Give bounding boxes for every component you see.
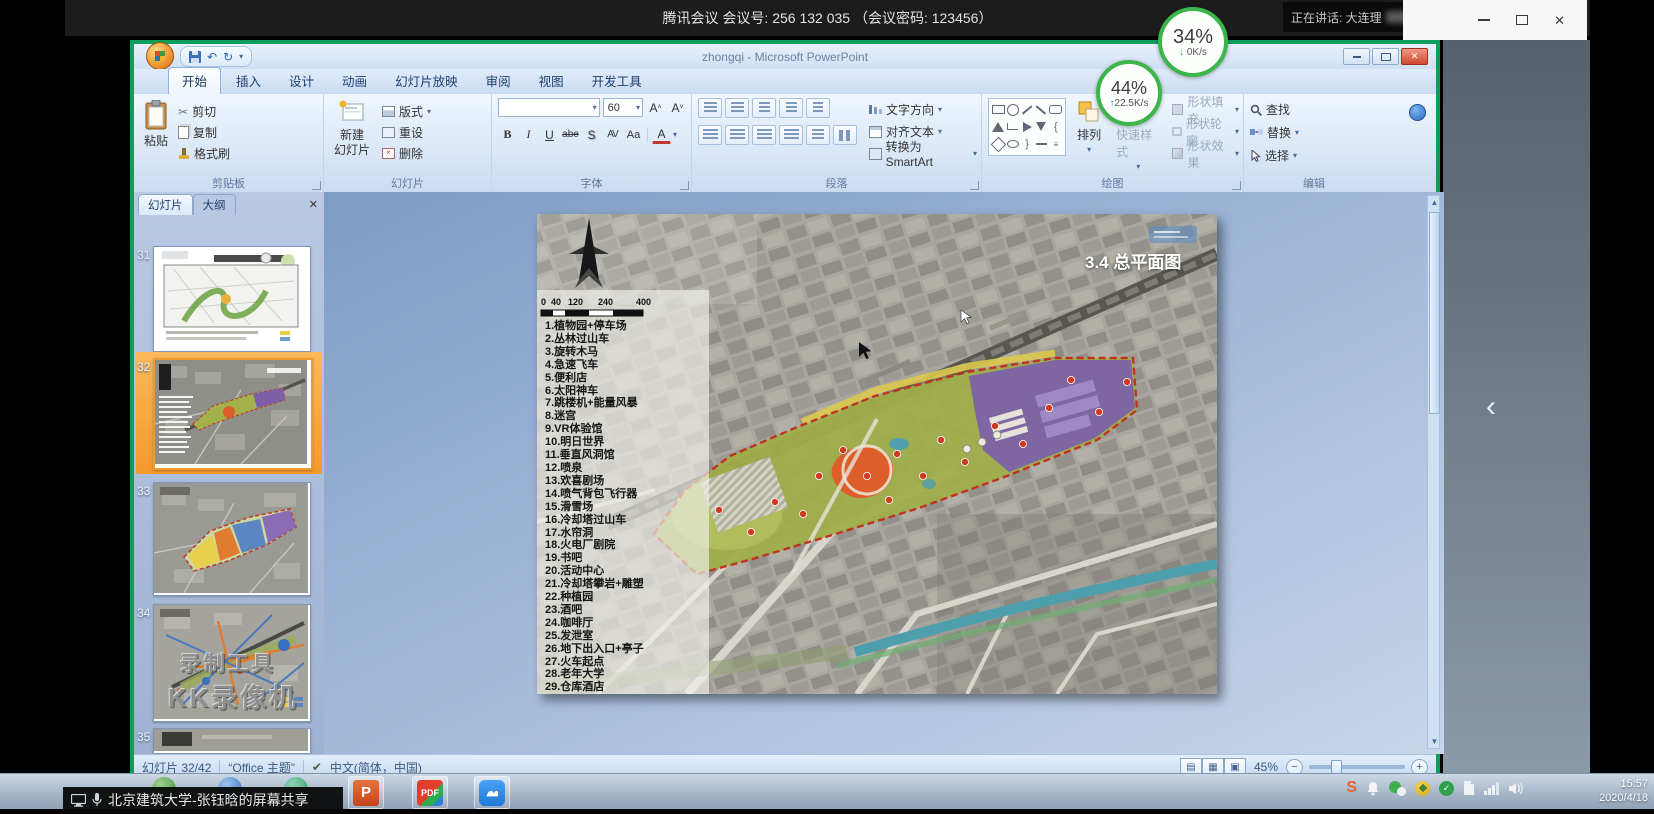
legend-item: 7.跳楼机+能量风暴 — [545, 397, 644, 410]
legend-item: 26.地下出入口+亭子 — [545, 643, 644, 656]
paste-button[interactable]: 粘贴 — [140, 98, 172, 163]
slide-number: 34 — [137, 606, 150, 620]
legend-item: 5.便利店 — [545, 372, 644, 385]
dialog-launcher-icon[interactable] — [312, 181, 321, 190]
replace-button[interactable]: 替换 ▾ — [1250, 123, 1380, 142]
recorder-window-controls: ✕ — [1403, 0, 1587, 40]
slide-thumbnail-32[interactable] — [153, 358, 313, 470]
network-percent: 44% — [1111, 78, 1147, 98]
legend-item: 10.明日世界 — [545, 436, 644, 449]
zoom-slider[interactable] — [1309, 765, 1405, 769]
change-case-button[interactable]: Aa — [624, 125, 643, 144]
select-button[interactable]: 选择 ▾ — [1250, 146, 1380, 165]
legend-item: 23.酒吧 — [545, 604, 644, 617]
ppt-window-controls: ✕ — [1343, 48, 1428, 65]
new-slide-icon — [339, 100, 365, 124]
slide-number: 35 — [137, 730, 150, 744]
windows-taskbar: 北京建筑大学-张钰晗的屏幕共享 P PDF S ✓ 15:57 2020/ — [0, 773, 1654, 810]
legend-item: 11.垂直风洞馆 — [545, 449, 644, 462]
increase-indent-button[interactable] — [779, 98, 803, 118]
ppt-restore-button[interactable] — [1372, 48, 1399, 65]
tray-volume-icon[interactable] — [1509, 782, 1524, 795]
ribbon-tab-row: 开始 插入 设计 动画 幻灯片放映 审阅 视图 开发工具 — [134, 69, 1436, 94]
tray-sogou-icon[interactable]: S — [1346, 780, 1357, 796]
meeting-title: 腾讯会议 会议号: 256 132 035 （会议密码: 123456） — [663, 8, 993, 28]
zoom-level: 45% — [1254, 760, 1278, 774]
tray-coin-icon[interactable] — [1415, 781, 1430, 796]
office-button[interactable] — [146, 42, 174, 70]
slide-thumbnail-31[interactable] — [153, 246, 311, 352]
legend-item: 12.喷泉 — [545, 462, 644, 475]
group-label: 剪贴板 — [134, 175, 323, 191]
italic-button[interactable]: I — [519, 125, 538, 144]
thumbnail-33-image — [154, 483, 308, 593]
legend-item: 29.仓库酒店 — [545, 681, 644, 694]
legend-item: 16.冷却塔过山车 — [545, 514, 644, 527]
align-right-button[interactable] — [752, 125, 776, 145]
redo-icon[interactable]: ↻ — [223, 51, 233, 63]
new-slide-button[interactable]: 新建 幻灯片 — [330, 98, 374, 163]
share-label-text: 北京建筑大学-张钰晗的屏幕共享 — [108, 790, 309, 810]
replace-icon — [1250, 127, 1263, 138]
slide-logo-badge — [1149, 226, 1197, 243]
legend-item: 19.书吧 — [545, 552, 644, 565]
meeting-app-icon — [479, 780, 505, 806]
office-logo-icon — [155, 51, 165, 61]
thumbnail-31-image — [154, 247, 308, 349]
shape-outline-icon — [1172, 127, 1183, 136]
justify-button[interactable] — [779, 125, 803, 145]
tray-bell-icon[interactable] — [1366, 781, 1380, 796]
bold-button[interactable]: B — [498, 125, 517, 144]
minimize-icon[interactable] — [1478, 19, 1490, 21]
speaking-indicator: 正在讲话: 大连理 — [1283, 2, 1413, 32]
legend-item: 6.太阳神车 — [545, 385, 644, 398]
legend-item: 15.滑雪场 — [545, 501, 644, 514]
pdf-icon: PDF — [417, 780, 443, 806]
slide-canvas[interactable]: 0 40 120 240 400 3.4 总平面图 1.植物园+停车场 2.丛林… — [537, 214, 1217, 694]
ppt-close-button[interactable]: ✕ — [1401, 48, 1428, 65]
powerpoint-window: ↶ ↻ ▾ zhongqi - Microsoft PowerPoint ✕ 开… — [130, 40, 1440, 775]
cut-icon: ✂ — [178, 105, 188, 119]
format-painter-button[interactable]: 格式刷 — [178, 144, 230, 163]
font-size-combo[interactable]: 60▾ — [603, 98, 643, 117]
align-text-icon — [869, 126, 882, 138]
slide-number: 32 — [137, 360, 150, 374]
shapes-gallery[interactable]: { } ≡ — [988, 98, 1066, 156]
group-label: 字体 — [492, 175, 691, 191]
legend-item: 27.火车起点 — [545, 656, 644, 669]
network-badge-inner: 44% ↑22.5K/s — [1096, 60, 1162, 126]
panel-close-icon[interactable]: ✕ — [309, 198, 318, 211]
dialog-launcher-icon[interactable] — [1232, 181, 1241, 190]
window-title: zhongqi - Microsoft PowerPoint — [134, 50, 1436, 64]
select-icon — [1250, 150, 1261, 162]
network-speed: 0K/s — [1187, 47, 1207, 58]
maximize-icon[interactable] — [1516, 15, 1528, 25]
legend-item: 3.旋转木马 — [545, 346, 644, 359]
align-center-button[interactable] — [725, 125, 749, 145]
legend-item: 17.水帘洞 — [545, 527, 644, 540]
font-color-dropdown-icon[interactable]: ▾ — [673, 130, 677, 139]
layout-button[interactable]: 版式 ▾ — [382, 102, 431, 121]
columns-button[interactable] — [833, 125, 857, 145]
recorder-watermark-line1: 录制工具 — [180, 648, 276, 678]
taskbar-powerpoint-button[interactable]: P — [348, 776, 384, 809]
cut-button[interactable]: ✂剪切 — [178, 102, 230, 121]
slide-thumbnail-33[interactable] — [153, 482, 311, 596]
legend-item: 13.欢喜剧场 — [545, 475, 644, 488]
slide-editing-area: 0 40 120 240 400 3.4 总平面图 1.植物园+停车场 2.丛林… — [324, 192, 1444, 754]
shape-fill-icon — [1172, 104, 1184, 115]
legend-item: 14.喷气背包飞行器 — [545, 488, 644, 501]
shape-effects-button[interactable]: 形状效果 ▾ — [1172, 144, 1240, 163]
group-label: 段落 — [692, 175, 981, 191]
network-speed: 22.5K/s — [1115, 98, 1149, 109]
strikethrough-button[interactable]: abe — [561, 125, 580, 144]
screen: 腾讯会议 会议号: 256 132 035 （会议密码: 123456） 正在讲… — [0, 0, 1654, 814]
clock-date: 2020/4/18 — [1599, 791, 1648, 805]
numbering-button[interactable] — [725, 98, 749, 118]
tab-review[interactable]: 审阅 — [473, 68, 524, 94]
tab-slideshow[interactable]: 幻灯片放映 — [382, 68, 471, 94]
scrollbar-thumb[interactable] — [1429, 212, 1440, 414]
slide-title: 3.4 总平面图 — [1085, 248, 1181, 273]
slides-panel: 幻灯片 大纲 ✕ 31 — [134, 192, 324, 754]
clock-time: 15:57 — [1599, 777, 1648, 791]
format-painter-icon — [178, 148, 190, 160]
tray-network-icon[interactable] — [1484, 782, 1500, 795]
dialog-launcher-icon[interactable] — [970, 181, 979, 190]
decrease-indent-button[interactable] — [752, 98, 776, 118]
bullets-button[interactable] — [698, 98, 722, 118]
thumbnail-32-image — [155, 360, 307, 464]
copy-button[interactable]: 复制 — [178, 123, 230, 142]
tab-slides-thumbnails[interactable]: 幻灯片 — [138, 194, 193, 215]
slide-number: 31 — [137, 248, 150, 262]
font-name-combo[interactable]: ▾ — [498, 98, 600, 117]
legend-item: 8.迷宫 — [545, 410, 644, 423]
text-direction-icon — [869, 104, 882, 115]
main-scrollbar[interactable]: ▲ ▼ — [1427, 195, 1440, 749]
taskbar-meeting-button[interactable] — [474, 776, 510, 809]
tab-home[interactable]: 开始 — [168, 67, 221, 94]
group-label: 编辑 — [1244, 175, 1384, 191]
group-clipboard: 粘贴 ✂剪切 复制 格式刷 剪贴板 — [134, 94, 324, 192]
speaking-label: 正在讲话: 大连理 — [1291, 9, 1382, 26]
underline-button[interactable]: U — [540, 125, 559, 144]
tab-outline[interactable]: 大纲 — [193, 194, 236, 215]
dialog-launcher-icon[interactable] — [680, 181, 689, 190]
tray-check-icon[interactable]: ✓ — [1439, 781, 1454, 796]
panel-tabs: 幻灯片 大纲 ✕ — [134, 194, 324, 215]
tab-insert[interactable]: 插入 — [223, 68, 274, 94]
paste-icon — [144, 100, 168, 130]
undo-icon[interactable]: ↶ — [207, 51, 217, 63]
shrink-font-button[interactable]: A˅ — [668, 98, 687, 117]
text-direction-button[interactable]: 文字方向 ▾ — [869, 100, 977, 119]
legend-item: 22.种植园 — [545, 591, 644, 604]
line-spacing-button[interactable] — [806, 98, 830, 118]
group-label: 绘图 — [982, 175, 1243, 191]
delete-slide-button[interactable]: ×删除 — [382, 144, 431, 163]
spellcheck-icon[interactable]: ✔ — [312, 760, 322, 774]
network-badge-top: 34% ↓ 0K/s — [1158, 7, 1228, 77]
tab-developer[interactable]: 开发工具 — [579, 68, 655, 94]
legend-item: 28.老年大学 — [545, 668, 644, 681]
convert-smartart-button[interactable]: 转换为 SmartArt ▾ — [869, 144, 977, 163]
help-icon[interactable] — [1409, 104, 1426, 121]
ppt-titlebar: ↶ ↻ ▾ zhongqi - Microsoft PowerPoint ✕ — [134, 44, 1436, 69]
screen-share-label: 北京建筑大学-张钰晗的屏幕共享 — [63, 787, 343, 813]
save-icon[interactable] — [189, 51, 201, 63]
reset-icon — [382, 127, 395, 138]
tray-green-dot-icon[interactable] — [1389, 781, 1406, 796]
quick-access-toolbar: ↶ ↻ ▾ — [180, 46, 252, 67]
tray-document-icon[interactable] — [1463, 781, 1475, 796]
microphone-icon — [92, 793, 102, 807]
thumbnail-35-image — [154, 729, 308, 751]
slide-number: 33 — [137, 484, 150, 498]
slide-thumbnail-35[interactable] — [153, 728, 311, 754]
group-editing: 查找 替换 ▾ 选择 ▾ 编辑 — [1244, 94, 1384, 192]
find-icon — [1250, 104, 1262, 116]
slide-legend: 1.植物园+停车场 2.丛林过山车 3.旋转木马 4.急速飞车 5.便利店 6.… — [545, 320, 644, 694]
legend-item: 21.冷却塔攀岩+雕塑 — [545, 578, 644, 591]
group-slides: 新建 幻灯片 版式 ▾ 重设 ×删除 幻灯片 — [324, 94, 492, 192]
group-font: ▾ 60▾ A˄ A˅ B I U abe S AV Aa A ▾ — [492, 94, 692, 192]
scale-bar — [541, 310, 643, 316]
font-color-button[interactable]: A — [652, 126, 671, 144]
character-spacing-button[interactable]: AV — [603, 125, 622, 144]
distribute-button[interactable] — [806, 125, 830, 145]
legend-item: 24.咖啡厅 — [545, 617, 644, 630]
reset-button[interactable]: 重设 — [382, 123, 431, 142]
close-icon[interactable]: ✕ — [1554, 14, 1565, 27]
legend-item: 18.火电厂剧院 — [545, 539, 644, 552]
recorder-watermark-line2: KK录像机 — [168, 678, 299, 715]
shadow-button[interactable]: S — [582, 125, 601, 144]
tab-design[interactable]: 设计 — [276, 68, 327, 94]
font-size-value: 60 — [608, 102, 620, 114]
shape-effects-icon — [1172, 148, 1184, 159]
legend-item: 1.植物园+停车场 — [545, 320, 644, 333]
tab-view[interactable]: 视图 — [526, 68, 577, 94]
system-tray: S ✓ — [1346, 780, 1524, 796]
layout-icon — [382, 106, 395, 117]
group-label: 幻灯片 — [324, 175, 491, 191]
align-left-button[interactable] — [698, 125, 722, 145]
taskbar-clock[interactable]: 15:57 2020/4/18 — [1599, 777, 1648, 805]
previous-video-arrow-icon[interactable]: ‹ — [1486, 392, 1496, 422]
legend-item: 25.发泄室 — [545, 630, 644, 643]
download-arrow-icon: ↓ — [1179, 47, 1184, 58]
legend-item: 4.急速飞车 — [545, 359, 644, 372]
ribbon: 粘贴 ✂剪切 复制 格式刷 剪贴板 新建 幻灯片 — [134, 94, 1436, 193]
grow-font-button[interactable]: A˄ — [646, 98, 665, 117]
group-paragraph: 文字方向 ▾ 对齐文本 ▾ 转换为 SmartArt ▾ 段落 — [692, 94, 982, 192]
legend-item: 9.VR体验馆 — [545, 423, 644, 436]
delete-icon: × — [382, 148, 395, 159]
powerpoint-icon: P — [353, 780, 379, 806]
right-letterbox — [1590, 0, 1654, 773]
legend-item: 20.活动中心 — [545, 565, 644, 578]
network-percent: 34% — [1173, 27, 1213, 47]
tab-animations[interactable]: 动画 — [329, 68, 380, 94]
legend-item: 2.丛林过山车 — [545, 333, 644, 346]
smartart-icon — [869, 148, 882, 160]
copy-icon — [178, 126, 189, 139]
qat-dropdown-icon[interactable]: ▾ — [239, 52, 243, 61]
desktop-unshared-area — [1443, 40, 1590, 773]
find-button[interactable]: 查找 — [1250, 100, 1380, 119]
ppt-minimize-button[interactable] — [1343, 48, 1370, 65]
monitor-icon — [71, 794, 86, 807]
left-letterbox — [0, 0, 65, 773]
taskbar-pdf-button[interactable]: PDF — [412, 776, 448, 809]
